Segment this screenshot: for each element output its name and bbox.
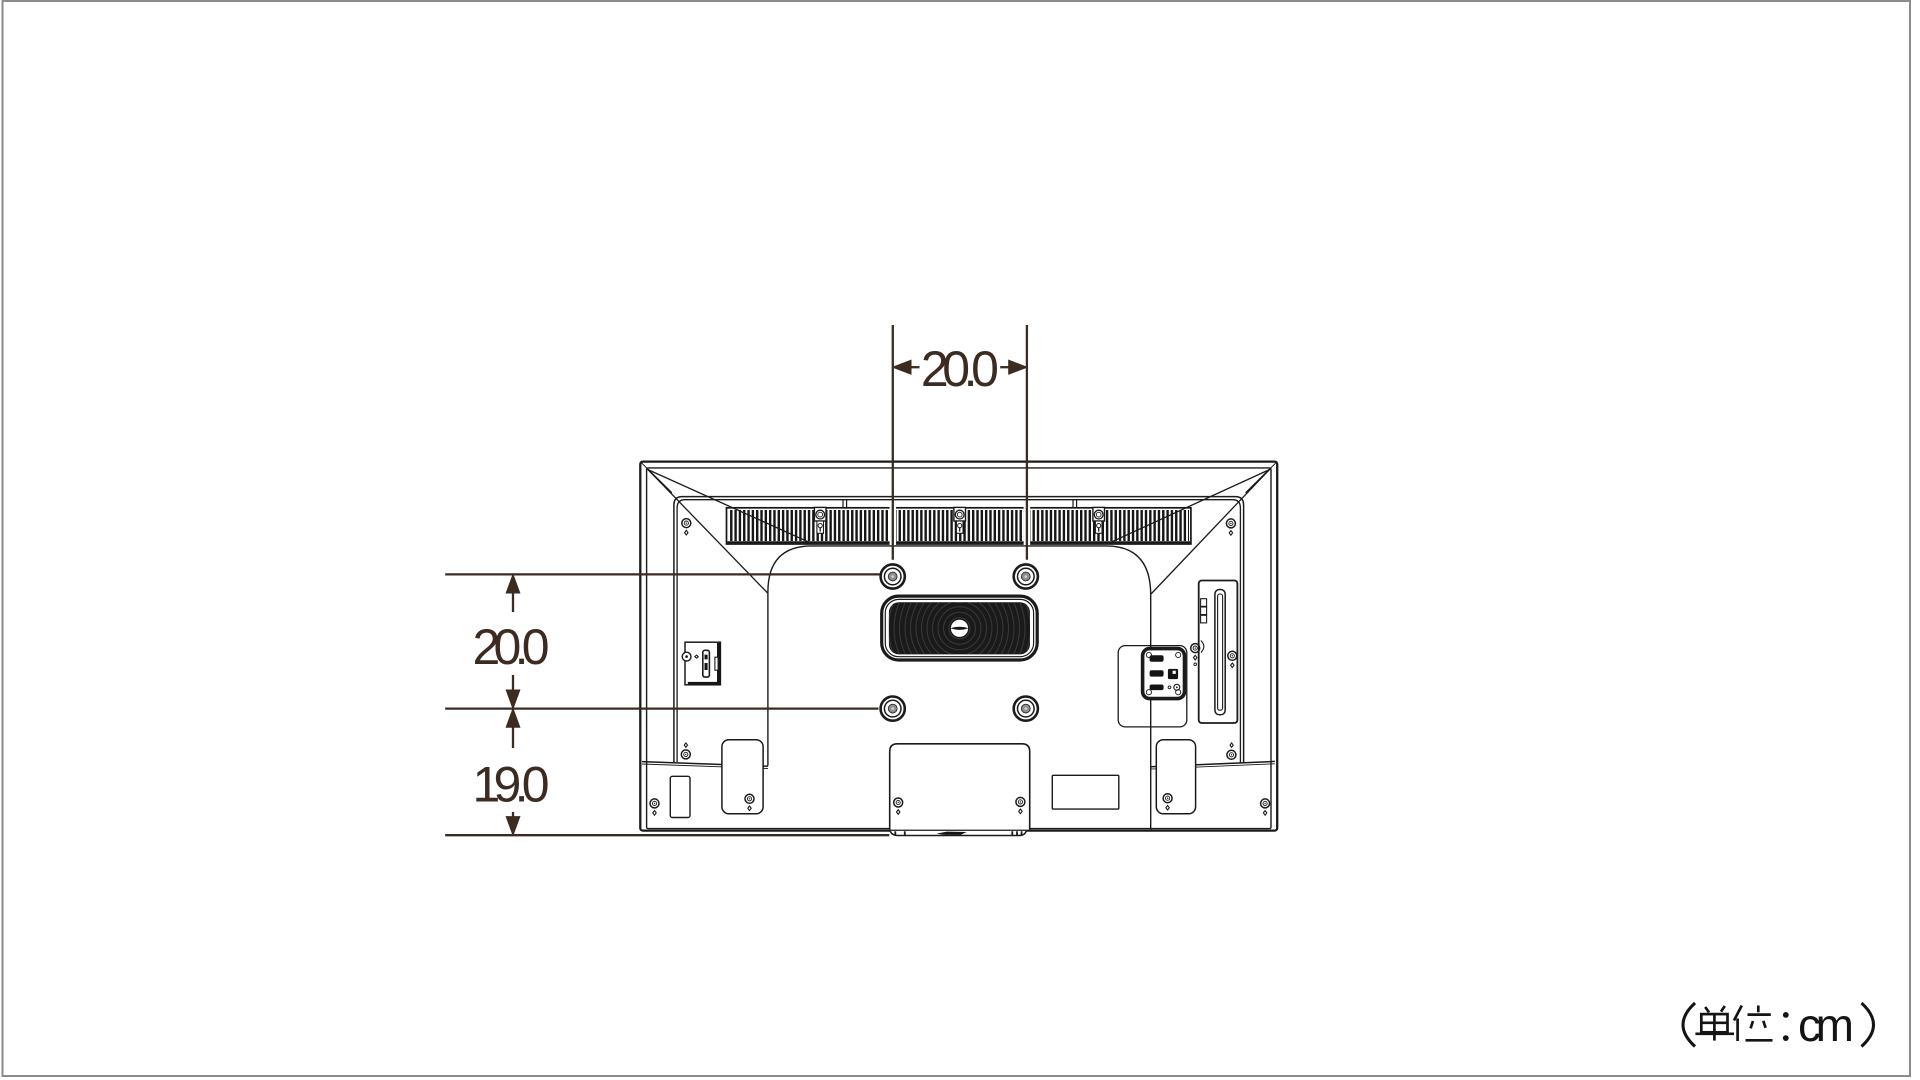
svg-text:19.0: 19.0 xyxy=(473,757,550,813)
svg-text:cm: cm xyxy=(1798,999,1854,1051)
svg-text:20.0: 20.0 xyxy=(921,341,999,397)
svg-text:20.0: 20.0 xyxy=(473,619,550,675)
